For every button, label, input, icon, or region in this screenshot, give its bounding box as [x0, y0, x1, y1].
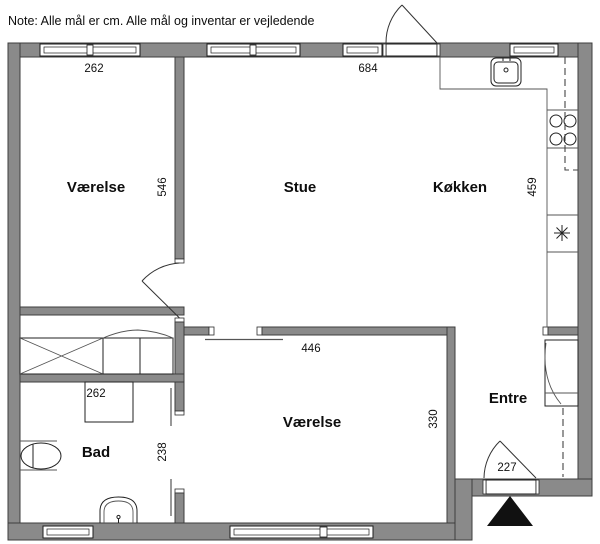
bathroom-fixtures	[20, 382, 137, 523]
door-frame-cap	[175, 489, 184, 493]
door-frame-cap	[543, 327, 548, 335]
door-swing-arc	[386, 5, 437, 43]
wall-bad-top	[20, 374, 184, 382]
doors	[142, 5, 539, 526]
hall-closet	[20, 330, 173, 374]
dim-vaerelse-s-depth: 330	[428, 409, 440, 428]
dim-koekken-depth: 459	[527, 177, 539, 196]
closet-section	[103, 338, 140, 374]
wall-stub-kitchen-entre	[548, 327, 578, 335]
door-frame-cap	[175, 259, 184, 263]
plan-note: Note: Alle mål er cm. Alle mål og invent…	[8, 14, 314, 28]
upper-cabinets-dashed	[565, 57, 578, 170]
labels: Note: Alle mål er cm. Alle mål og invent…	[8, 14, 539, 474]
window-koekken	[510, 44, 558, 56]
floor-plan: Note: Alle mål er cm. Alle mål og invent…	[0, 0, 600, 544]
entre-cabinet-icon	[545, 340, 578, 406]
dim-vaerelse-nw-depth: 546	[157, 177, 169, 196]
room-label-koekken: Køkken	[433, 179, 487, 196]
entre-fixtures	[545, 340, 578, 477]
dim-bad-width: 262	[86, 388, 105, 400]
wall-bad-hall-lower	[175, 493, 184, 523]
window-vaerelse-nw	[40, 44, 140, 56]
toilet-icon	[20, 441, 61, 470]
freezer-star-icon	[547, 215, 578, 252]
door-frame-cap	[175, 411, 184, 415]
wall-vaerelse-nw-bottom	[20, 307, 184, 315]
wall-bad-hall	[175, 322, 184, 411]
step-connector-wall	[455, 479, 472, 540]
room-label-vaerelse-s: Værelse	[283, 414, 341, 431]
wardrobe-icon	[20, 338, 103, 374]
door-frame-cap	[209, 327, 214, 335]
room-label-bad: Bad	[82, 444, 110, 461]
windows	[40, 44, 558, 538]
terrace-door	[383, 5, 440, 56]
wall-stub-left	[184, 327, 209, 335]
wall-vaerelse-nw-stue	[175, 57, 184, 259]
entrance-arrow-icon	[487, 496, 533, 526]
left-wall	[8, 43, 20, 540]
door-frame-cap	[175, 318, 184, 322]
wall-vaerelse-s-top	[262, 327, 447, 335]
room-label-entre: Entre	[489, 390, 527, 407]
window-stue-east	[343, 44, 382, 56]
dim-vaerelse-s-width: 446	[301, 343, 320, 355]
room-label-stue: Stue	[284, 179, 317, 196]
window-stue-west	[207, 44, 300, 56]
closet-section	[140, 338, 173, 374]
door-frame-cap	[257, 327, 262, 335]
hand-basin-icon	[100, 497, 137, 523]
dim-vaerelse-nw-width: 262	[84, 63, 103, 75]
closet-door-swing	[103, 330, 173, 338]
kitchen-sink-icon	[491, 58, 521, 86]
entrance-door	[483, 441, 539, 526]
wall-vaerelse-s-entre	[447, 327, 455, 523]
dim-entrance-width: 227	[497, 462, 516, 474]
dim-stue-width: 684	[358, 63, 378, 75]
window-vaerelse-s	[230, 526, 373, 538]
stove-icon	[547, 110, 578, 148]
right-wall	[578, 43, 592, 496]
room-label-vaerelse-nw: Værelse	[67, 179, 125, 196]
dim-bad-depth: 238	[157, 442, 169, 461]
window-bad	[43, 526, 93, 538]
